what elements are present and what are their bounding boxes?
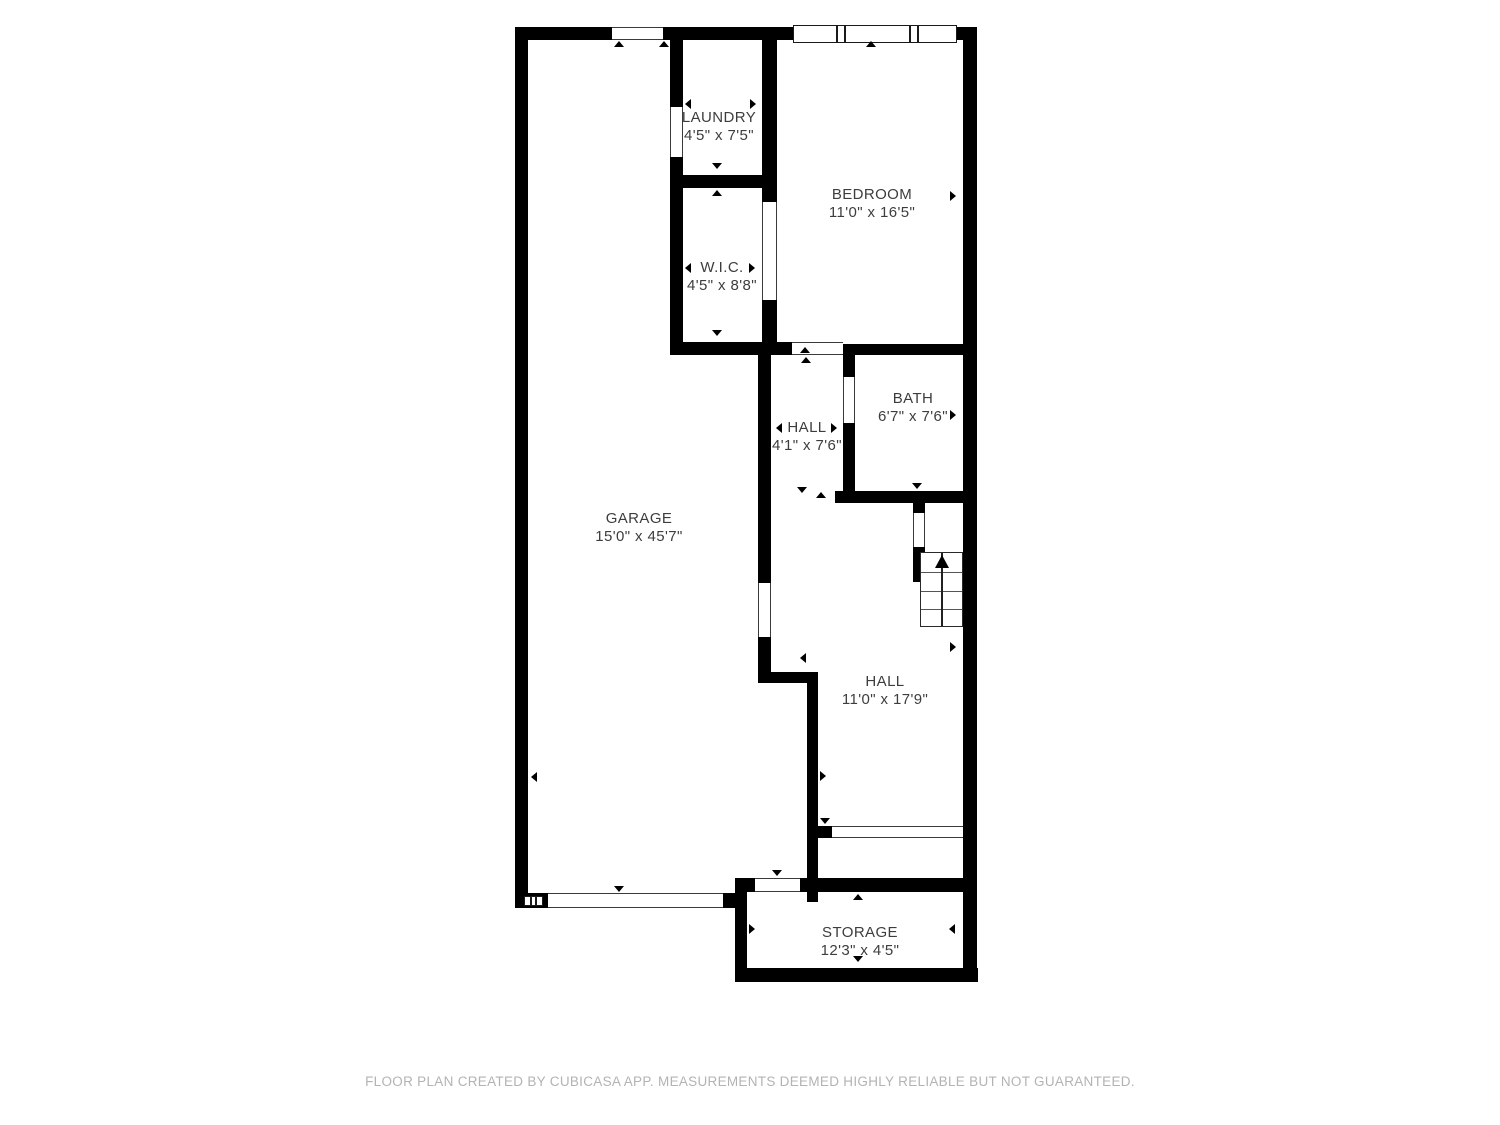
footer-disclaimer: FLOOR PLAN CREATED BY CUBICASA APP. MEAS… <box>0 1074 1500 1089</box>
room-dimensions: 12'3" x 4'5" <box>821 942 900 960</box>
storage-door-opening <box>755 878 800 892</box>
room-name: BEDROOM <box>829 186 915 204</box>
measure-tick <box>912 483 922 489</box>
stair-wall-nub <box>913 500 925 513</box>
garage-top-opening <box>612 27 663 40</box>
measure-tick <box>685 99 691 109</box>
room-name: GARAGE <box>595 510 682 528</box>
room-dimensions: 15'0" x 45'7" <box>595 528 682 546</box>
floor-plan: LAUNDRY 4'5" x 7'5" BEDROOM 11'0" x 16'5… <box>0 0 1500 1125</box>
wic-door-opening <box>762 202 777 300</box>
room-dimensions: 4'5" x 7'5" <box>682 127 756 145</box>
garage-door-right-nub <box>723 893 740 908</box>
room-label-garage: GARAGE 15'0" x 45'7" <box>595 510 682 546</box>
measure-tick <box>801 357 811 363</box>
room-label-hall-lower: HALL 11'0" x 17'9" <box>842 673 928 709</box>
staircase <box>920 552 963 627</box>
room-label-hall-upper: HALL 4'1" x 7'6" <box>772 419 842 455</box>
room-dimensions: 6'7" x 7'6" <box>878 408 948 426</box>
measure-tick <box>853 894 863 900</box>
room-dimensions: 11'0" x 16'5" <box>829 204 915 222</box>
measure-tick <box>712 190 722 196</box>
storage-bottom-wall <box>735 968 978 982</box>
measure-tick <box>820 818 830 824</box>
measure-tick <box>950 410 956 420</box>
stair-door-opening <box>913 513 925 547</box>
measure-tick <box>750 99 756 109</box>
garage-sidelight-window <box>524 896 543 906</box>
measure-tick <box>659 41 669 47</box>
garage-hall-door-opening <box>758 583 771 637</box>
garage-door-opening <box>548 893 723 908</box>
room-dimensions: 4'5" x 8'8" <box>687 277 757 295</box>
measure-tick <box>772 870 782 876</box>
measure-tick <box>797 487 807 493</box>
measure-tick <box>950 191 956 201</box>
measure-tick <box>950 642 956 652</box>
bath-left-wall-upper <box>843 344 855 377</box>
room-name: HALL <box>772 419 842 437</box>
measure-tick <box>614 886 624 892</box>
hall-wide-door-opening <box>832 826 963 838</box>
measure-tick <box>866 41 876 47</box>
room-name: HALL <box>842 673 928 691</box>
measure-tick <box>800 653 806 663</box>
laundry-wic-divider-wall <box>670 175 777 188</box>
room-label-bedroom: BEDROOM 11'0" x 16'5" <box>829 186 915 222</box>
room-name: W.I.C. <box>687 259 757 277</box>
room-dimensions: 11'0" x 17'9" <box>842 691 928 709</box>
room-name: STORAGE <box>821 924 900 942</box>
storage-top-wall-right <box>800 878 963 892</box>
measure-tick <box>749 924 755 934</box>
room-label-storage: STORAGE 12'3" x 4'5" <box>821 924 900 960</box>
room-label-bath: BATH 6'7" x 7'6" <box>878 390 948 426</box>
stairs-up-arrow-icon <box>935 555 949 568</box>
room-name: LAUNDRY <box>682 109 756 127</box>
garage-hall-wall-upper <box>758 355 771 583</box>
measure-tick <box>949 924 955 934</box>
measure-tick <box>816 492 826 498</box>
exterior-wall-right <box>963 27 977 982</box>
exterior-wall-left <box>515 27 528 908</box>
room-name: BATH <box>878 390 948 408</box>
measure-tick <box>800 347 810 353</box>
measure-tick <box>820 771 826 781</box>
bath-bottom-wall <box>835 491 963 503</box>
measure-tick <box>614 41 624 47</box>
hall-left-wall <box>807 672 818 902</box>
exterior-wall-top-a <box>515 27 612 40</box>
threshold-left-cap <box>818 826 832 838</box>
exterior-wall-top-b <box>663 27 793 40</box>
laundry-left-wall-upper <box>670 40 683 107</box>
measure-tick <box>712 330 722 336</box>
wic-bottom-wall <box>670 342 792 355</box>
room-label-laundry: LAUNDRY 4'5" x 7'5" <box>682 109 756 145</box>
room-dimensions: 4'1" x 7'6" <box>772 437 842 455</box>
bath-door-opening <box>843 377 855 423</box>
measure-tick <box>864 346 874 352</box>
room-label-wic: W.I.C. 4'5" x 8'8" <box>687 259 757 295</box>
measure-tick <box>531 772 537 782</box>
bath-top-wall <box>843 344 963 355</box>
measure-tick <box>712 163 722 169</box>
